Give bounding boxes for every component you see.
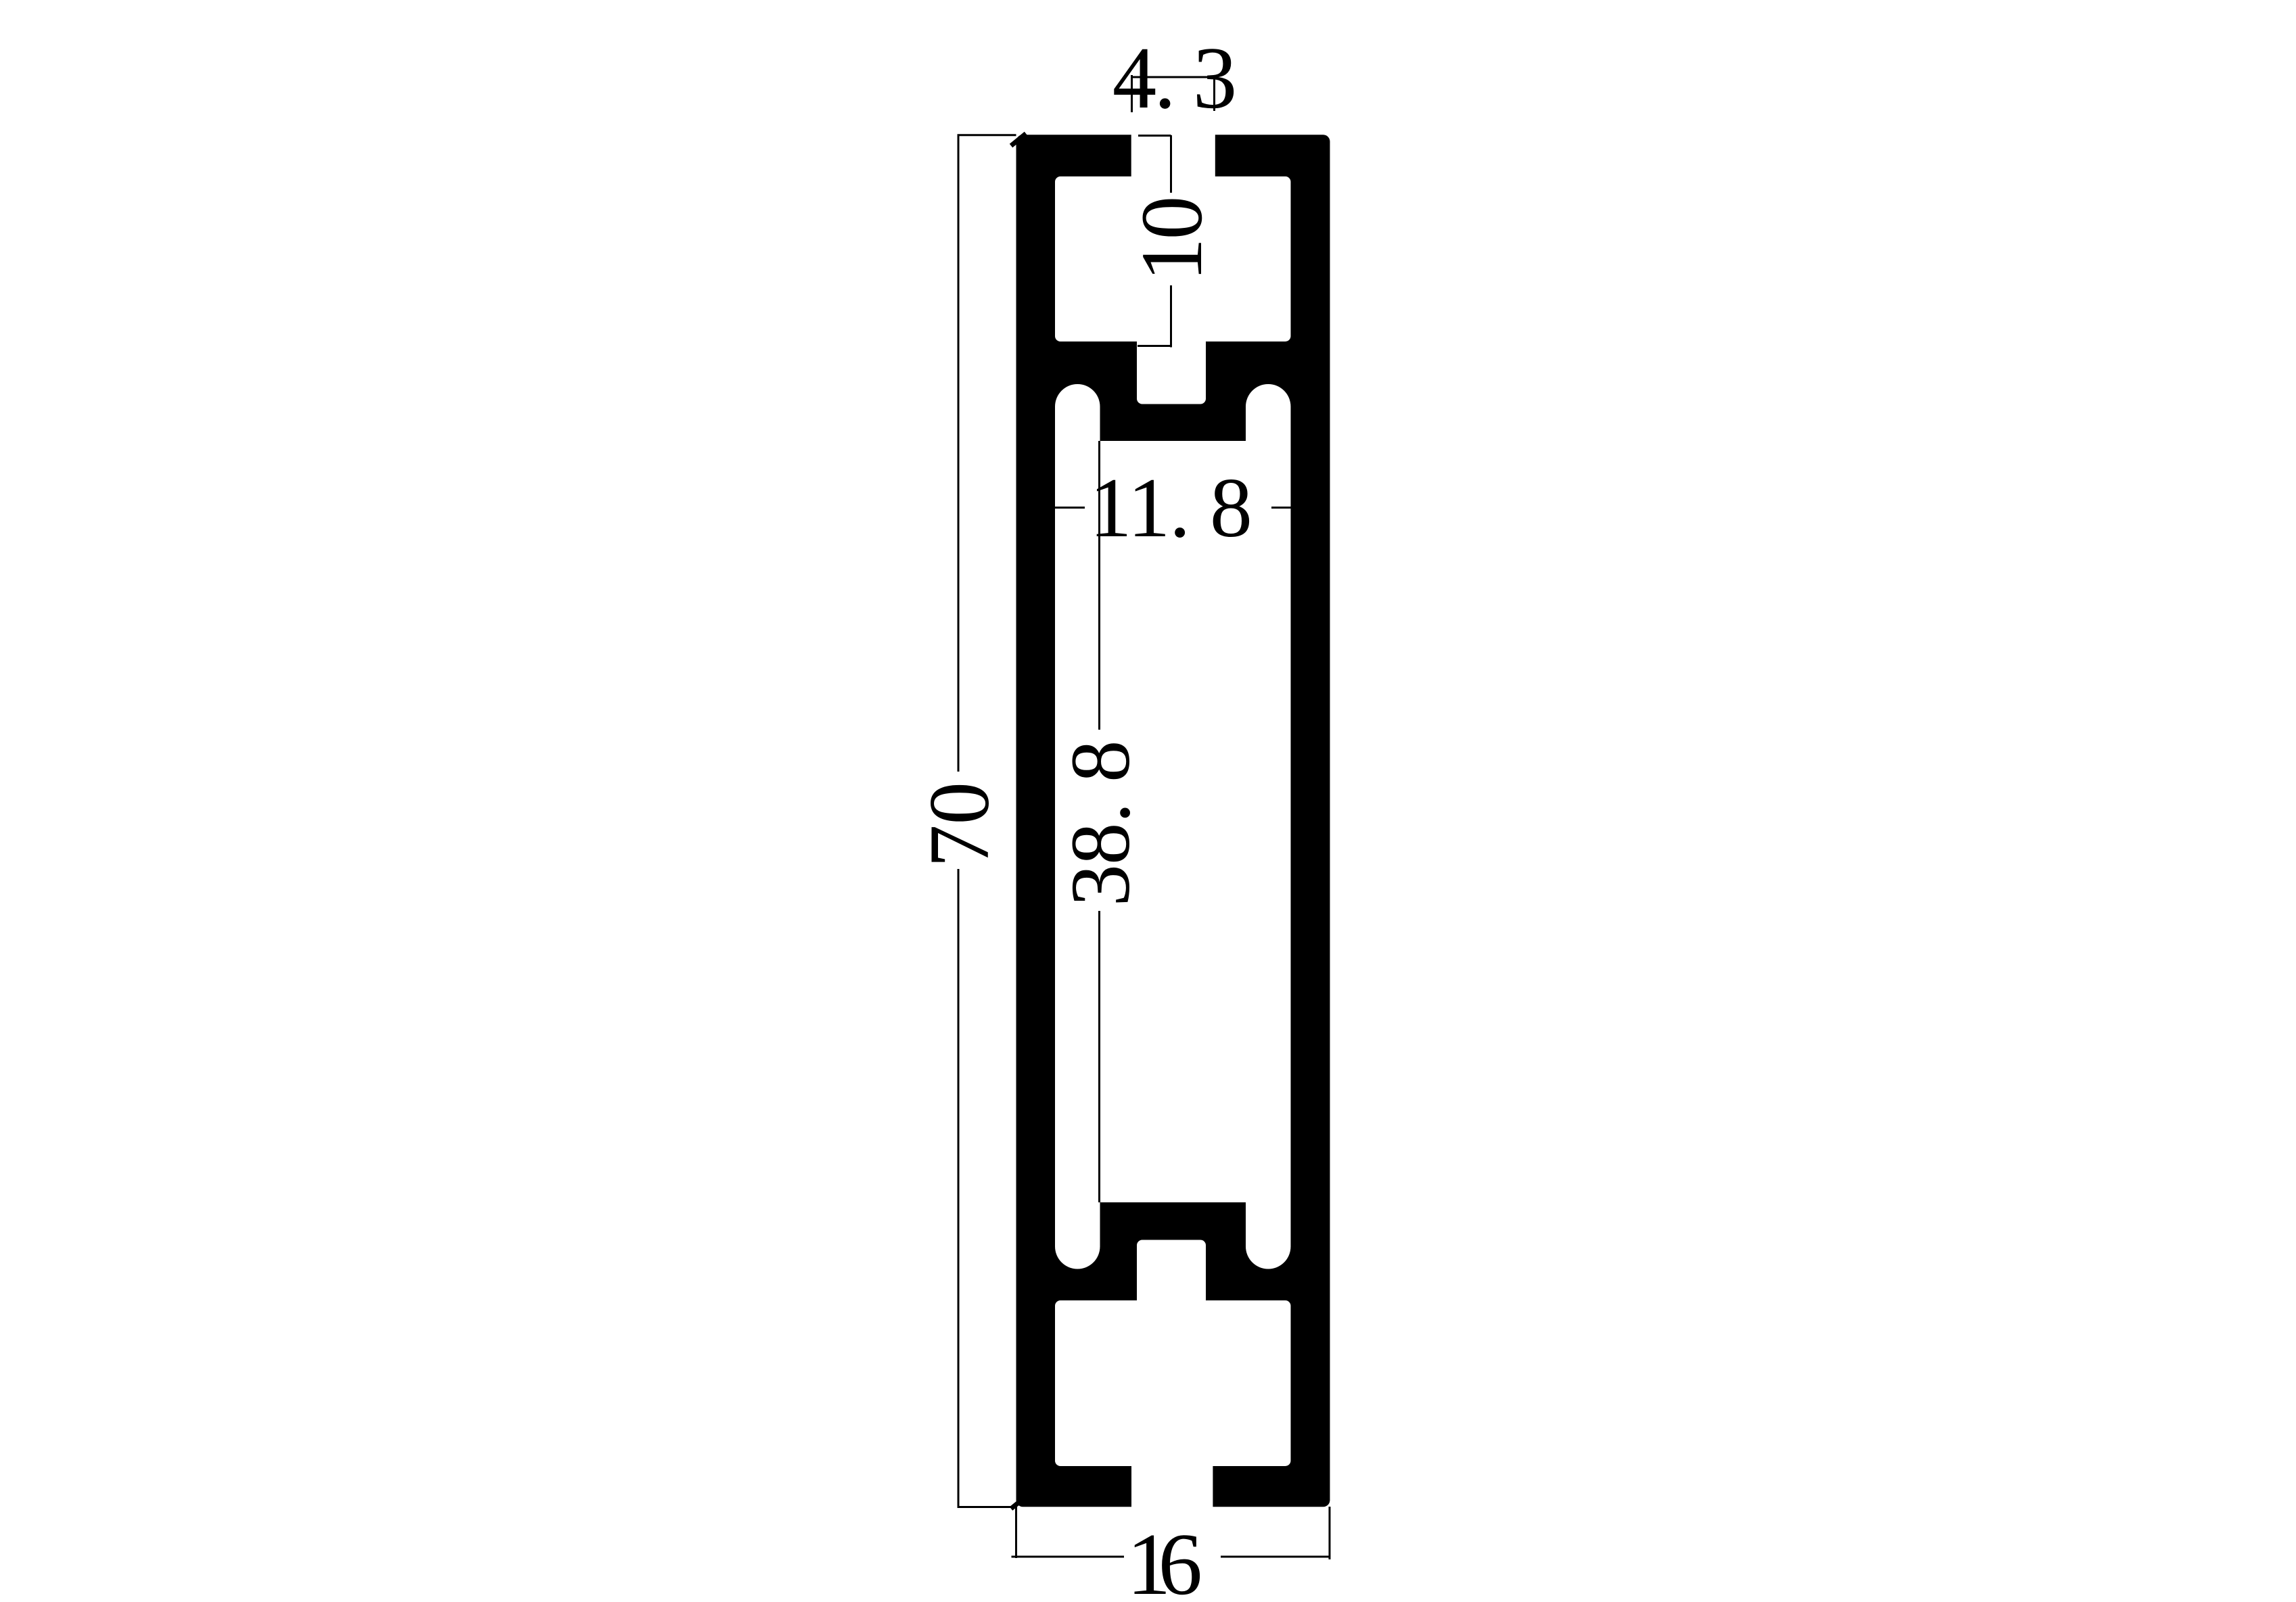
svg-text:11. 8: 11. 8: [1090, 461, 1252, 555]
svg-text:4. 3: 4. 3: [1112, 29, 1235, 127]
svg-text:16: 16: [1127, 1515, 1200, 1602]
svg-text:38. 8: 38. 8: [1054, 741, 1148, 907]
svg-text:70: 70: [912, 782, 1007, 868]
svg-text:10: 10: [1123, 198, 1221, 282]
